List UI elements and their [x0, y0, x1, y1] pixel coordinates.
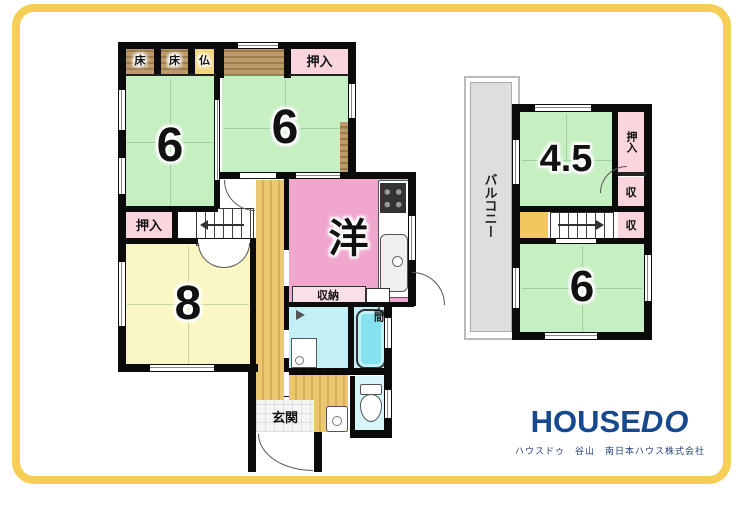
room-size-label: 8 — [126, 268, 250, 338]
logo-house-text: HOUSE — [531, 404, 641, 439]
window — [513, 268, 519, 308]
window — [119, 262, 125, 326]
drain-icon — [295, 356, 304, 365]
sliding-door — [296, 173, 340, 178]
butsudan-label: 仏 — [195, 46, 214, 74]
room-size-label: 6 — [222, 92, 348, 162]
doma-label: 土間 — [366, 290, 388, 334]
window — [238, 43, 278, 48]
hallway-vertical — [256, 180, 284, 432]
oshiire-label: 押入 — [126, 210, 172, 238]
oshiire-label: 押入 — [618, 112, 644, 172]
stairs-2f-arrow-head — [596, 220, 604, 230]
window — [349, 84, 355, 118]
room-size-label: 4.5 — [520, 126, 612, 192]
floorplan-canvas: 床 床 仏 押入 押入 6 6 8 洋 収納 土間 玄関 バルコニー 4.5 押… — [0, 0, 750, 505]
window — [513, 140, 519, 184]
door-opening — [556, 239, 596, 243]
engawa-strip — [224, 46, 284, 76]
oshiire-label: 押入 — [291, 46, 348, 74]
shunou-label: 収納 — [292, 286, 364, 303]
storage-label: 収 — [618, 177, 644, 206]
genkan-label: 玄関 — [256, 400, 314, 432]
wall — [644, 104, 652, 340]
wall — [248, 368, 256, 472]
wall — [188, 46, 195, 76]
stairs-1f-arrow-head — [200, 220, 208, 230]
basin-bowl-icon — [332, 416, 342, 426]
stairs-landing — [520, 212, 548, 238]
room-size-label: 6 — [122, 110, 218, 180]
stairs-2f-arrow-line — [558, 224, 596, 226]
door-opening — [240, 173, 276, 178]
logo-subtitle: ハウスドゥ 谷山 南日本ハウス株式会社 — [505, 444, 715, 457]
tokonoma-label: 床 — [126, 46, 154, 74]
window — [150, 365, 214, 371]
window — [645, 255, 651, 301]
window — [545, 333, 597, 339]
storage-label: 収 — [618, 212, 644, 238]
wall — [350, 376, 355, 434]
window — [385, 390, 391, 418]
housedo-logo: HOUSEDO ハウスドゥ 谷山 南日本ハウス株式会社 — [505, 406, 715, 457]
window — [535, 105, 591, 111]
logo-do-text: DO — [641, 404, 690, 439]
stairs-2f — [550, 212, 614, 240]
wall — [154, 46, 161, 76]
wall — [126, 74, 216, 76]
window — [409, 216, 415, 260]
shower-pan-icon — [291, 338, 317, 368]
wall — [214, 42, 224, 78]
wall — [284, 368, 388, 375]
stairs-1f-arrow-line — [206, 224, 244, 226]
wall — [348, 306, 354, 368]
door-opening — [284, 330, 289, 358]
wall — [284, 42, 291, 78]
wall — [250, 242, 256, 368]
door-fold-icon — [296, 310, 305, 320]
wall — [314, 432, 322, 472]
door-opening — [284, 372, 289, 396]
logo-wordmark: HOUSEDO — [505, 406, 715, 437]
balcony-label: バルコニー — [474, 150, 506, 260]
tokonoma-label: 床 — [161, 46, 188, 74]
wall — [289, 74, 350, 76]
western-room-label: 洋 — [289, 200, 408, 270]
room-size-label: 6 — [520, 250, 644, 324]
